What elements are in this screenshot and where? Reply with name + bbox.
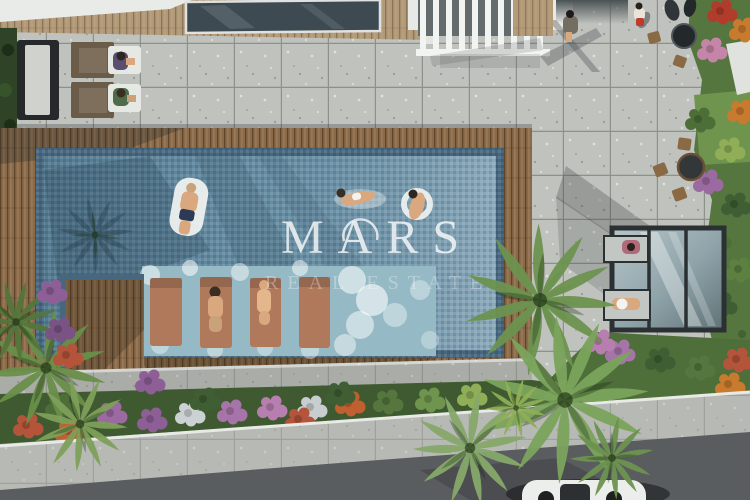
real-estate-aerial-rendering: MARS REAL ESTATE [0, 0, 750, 500]
bistro-chair [677, 137, 692, 151]
sun-lounger [150, 278, 182, 346]
outdoor-sofa [17, 40, 59, 120]
car-roof-glass [560, 484, 590, 500]
rendering-canvas: MARS REAL ESTATE [0, 0, 750, 500]
watermark-tagline: REAL ESTATE [265, 272, 491, 294]
person-in-gazebo-2 [612, 298, 640, 310]
watermark: MARS REAL ESTATE [265, 211, 491, 294]
person-in-gazebo-1 [622, 240, 640, 254]
